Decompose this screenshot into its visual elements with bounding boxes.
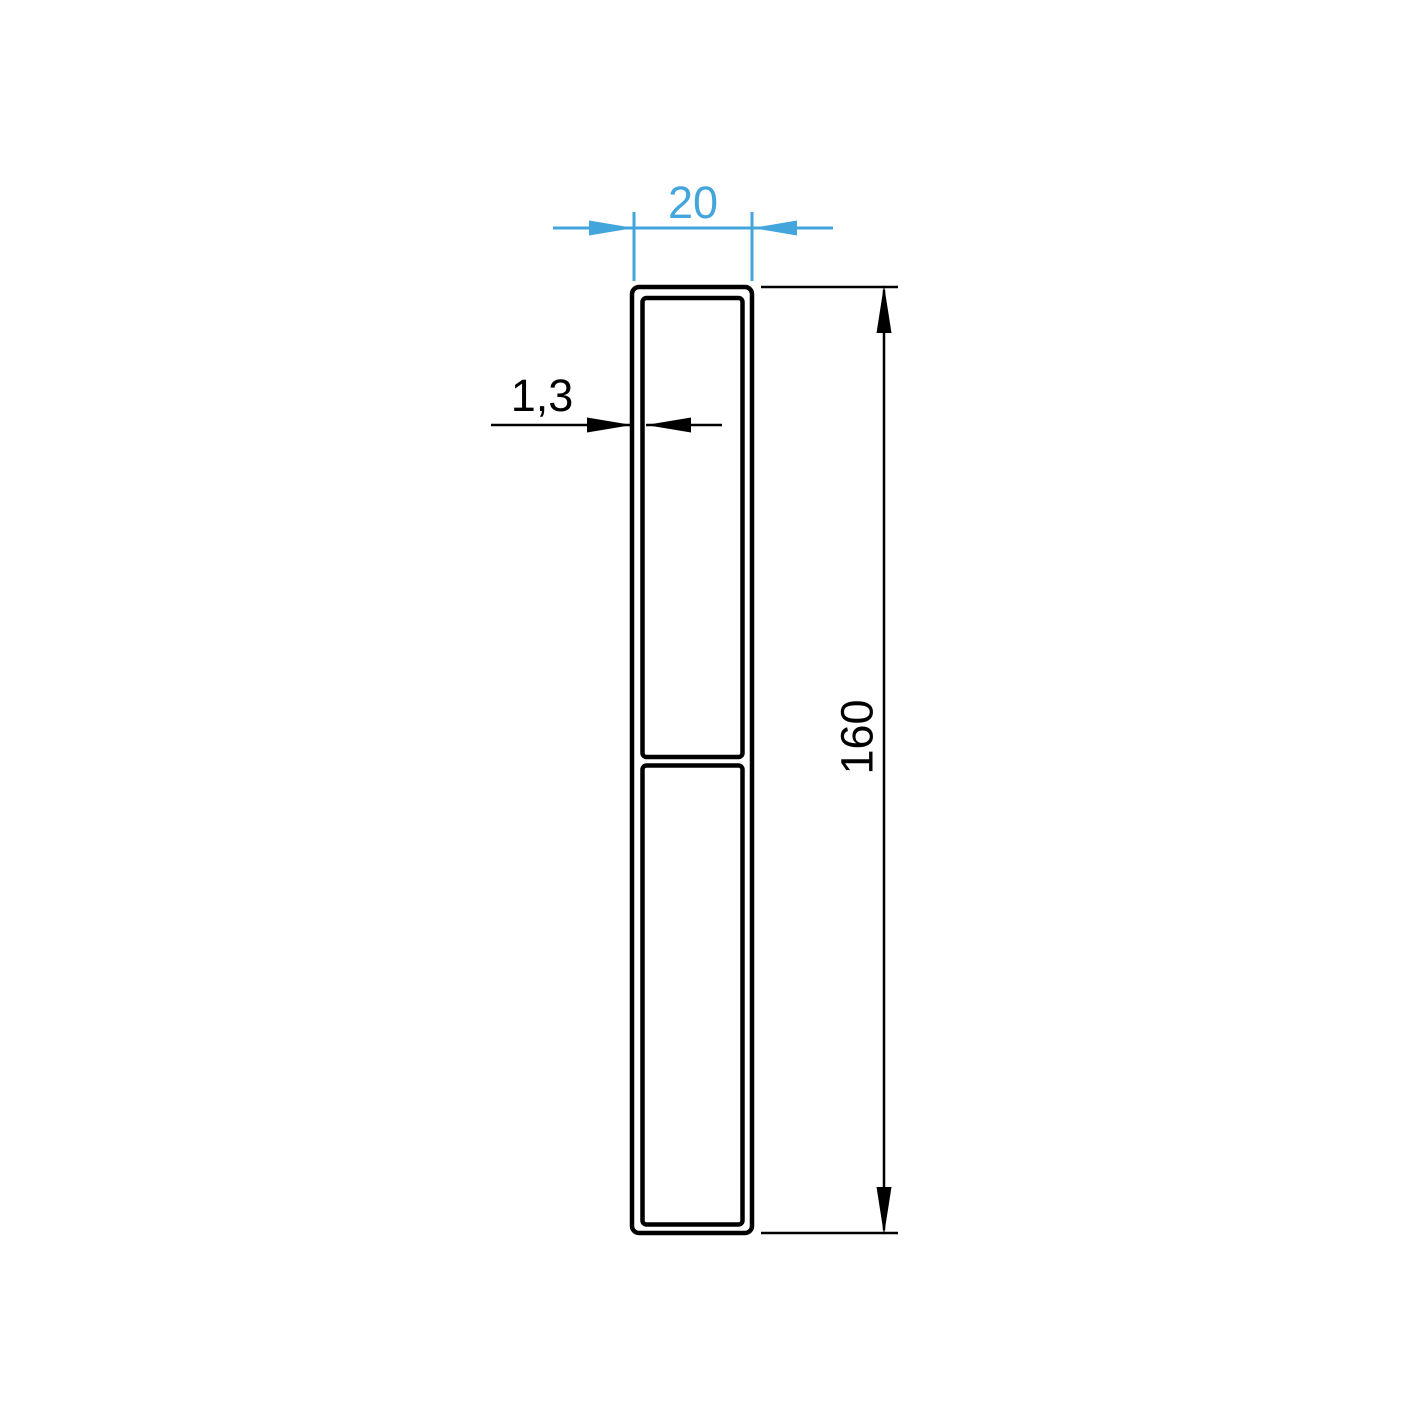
height-dimension-value: 160	[832, 699, 883, 774]
width-arrowhead-left	[589, 221, 634, 236]
profile-lower-cavity	[643, 766, 743, 1225]
profile-section	[632, 287, 752, 1233]
width-arrowhead-right	[752, 221, 797, 236]
height-arrowhead-top	[877, 285, 892, 333]
height-dimension: 160	[761, 285, 898, 1235]
thickness-dimension-value: 1,3	[511, 370, 574, 421]
width-dimension-value: 20	[668, 177, 718, 228]
width-dimension: 20	[553, 177, 833, 281]
drawing-canvas: 20 1,3 160	[0, 0, 1417, 1417]
profile-outer-contour	[632, 287, 752, 1233]
height-arrowhead-bottom	[877, 1187, 892, 1235]
thickness-dimension: 1,3	[491, 370, 722, 433]
thickness-arrowhead-right	[646, 418, 691, 433]
thickness-arrowhead-left	[587, 418, 632, 433]
profile-upper-cavity	[643, 298, 743, 757]
profile-cross-section-drawing: 20 1,3 160	[0, 0, 1417, 1417]
